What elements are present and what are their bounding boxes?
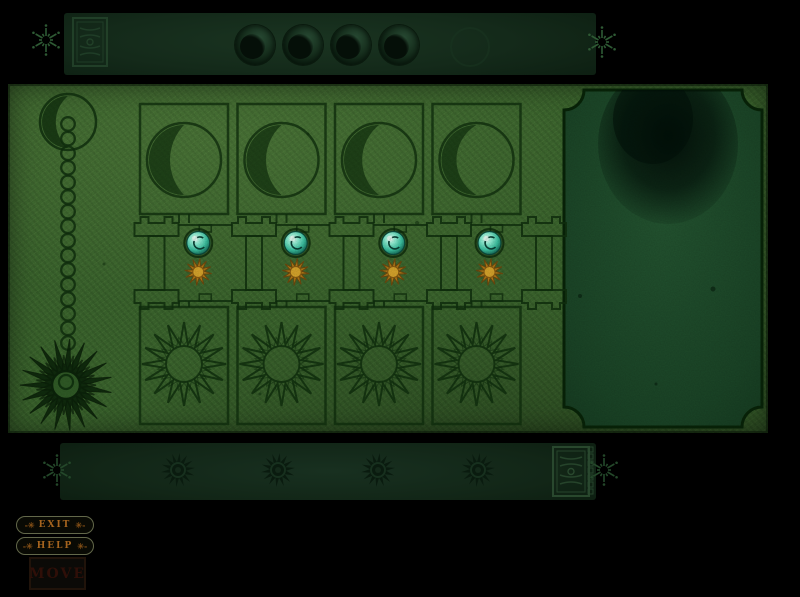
sun-ornament-left-icon: -✳ (25, 520, 35, 530)
help-button[interactable]: -✳ HELP ✳- (16, 537, 94, 555)
bottom-bar (60, 443, 596, 500)
sparkle-ornament-icon (587, 453, 621, 487)
help-button-label: HELP (37, 541, 73, 551)
moon-dial-row (235, 25, 419, 65)
sun-ornament-left-icon: -✳ (23, 541, 33, 551)
game-screen: -✳ EXIT ✳- -✳ HELP ✳- MOVE (0, 0, 800, 597)
move-button[interactable]: MOVE (29, 557, 86, 590)
board-art (8, 84, 768, 433)
ornate-seal-art (73, 18, 107, 66)
bottom-bar-art (60, 443, 596, 500)
move-button-label: MOVE (29, 566, 86, 582)
sparkle-ornament-icon (40, 453, 74, 487)
sparkle-ornament-icon (29, 23, 63, 57)
sun-ornament-right-icon: ✳- (77, 541, 87, 551)
seal-art (72, 17, 108, 67)
moon-dial-3[interactable] (331, 25, 371, 65)
sun-ornament-right-icon: ✳- (75, 520, 85, 530)
sun-dial-4[interactable] (461, 453, 495, 487)
ornate-seal-art (553, 447, 589, 496)
moon-dial-4[interactable] (379, 25, 419, 65)
sun-dial-2[interactable] (261, 453, 295, 487)
game-board (8, 84, 768, 433)
moon-dial-2[interactable] (283, 25, 323, 65)
moon-dial-1[interactable] (235, 25, 275, 65)
sparkle-ornament-icon (585, 25, 619, 59)
exit-button-label: EXIT (39, 520, 72, 530)
ornate-seal-stamp (72, 17, 108, 67)
sun-dial-3[interactable] (361, 453, 395, 487)
top-bar (64, 13, 596, 75)
sun-dial-1[interactable] (161, 453, 195, 487)
moon-dial-5-faint[interactable] (450, 27, 490, 67)
exit-button[interactable]: -✳ EXIT ✳- (16, 516, 94, 534)
